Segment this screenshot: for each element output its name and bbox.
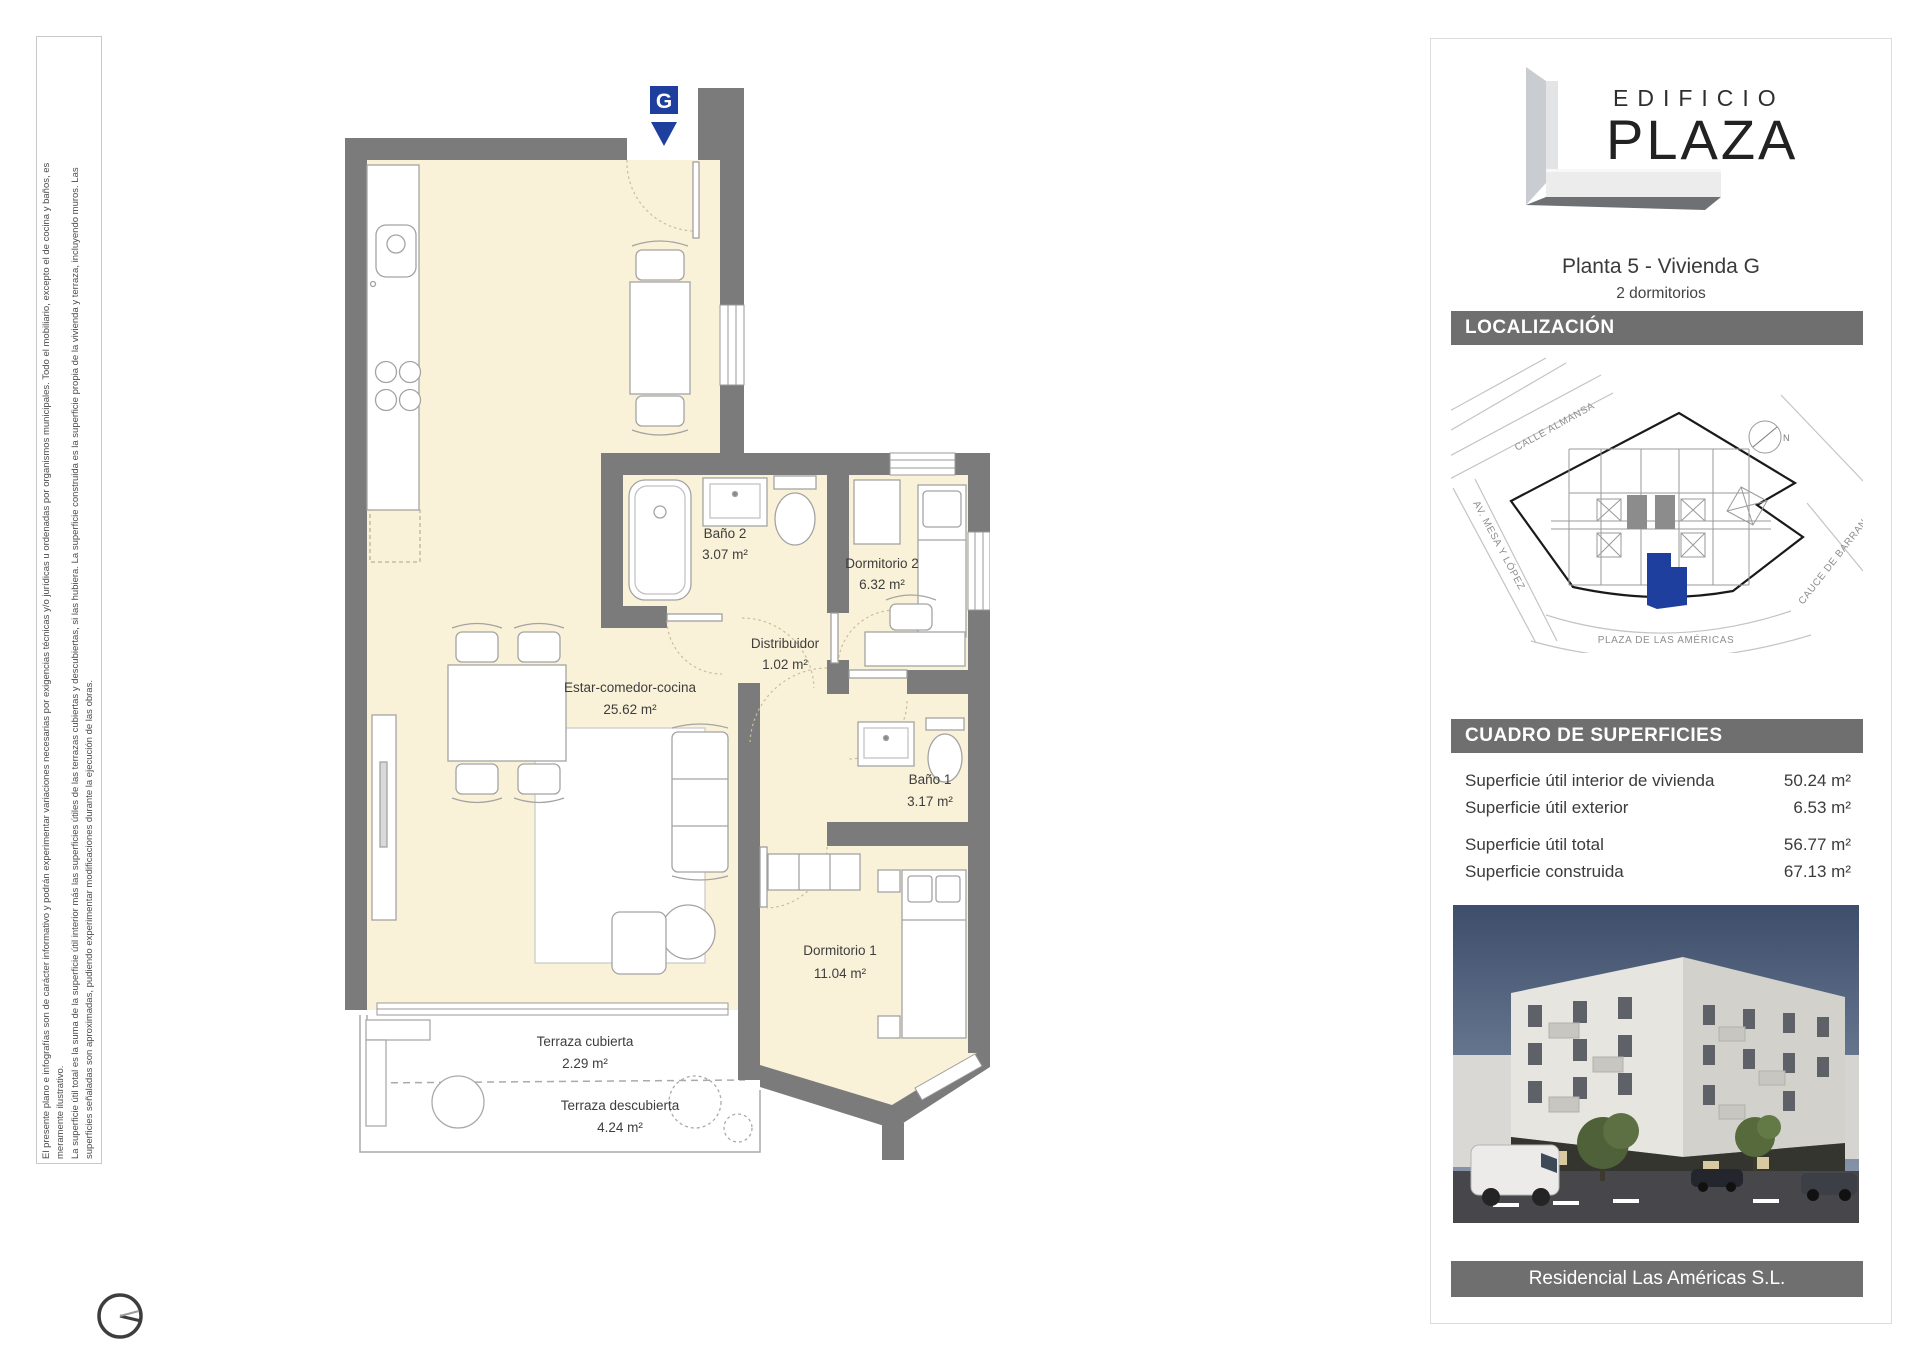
street-label: CALLE ALMANSA: [1513, 401, 1597, 454]
room-label: Distribuidor: [751, 636, 820, 651]
info-panel: EDIFICIO PLAZA Planta 5 - Vivienda G 2 d…: [1430, 38, 1892, 1324]
disclaimer-line: El presente plano e infografías son de c…: [40, 41, 54, 1159]
unit-title: Planta 5 - Vivienda G: [1431, 255, 1891, 279]
disclaimer-line: meramente ilustrativo.: [54, 41, 68, 1159]
room-area: 1.02 m²: [762, 657, 808, 672]
street-label: PLAZA DE LAS AMÉRICAS: [1598, 633, 1735, 646]
row-label: Superficie útil interior de vivienda: [1465, 771, 1714, 791]
entrance-arrow-icon: [651, 122, 677, 146]
row-label: Superficie construida: [1465, 862, 1624, 882]
row-value: 56.77 m²: [1784, 835, 1851, 855]
room-area: 6.32 m²: [859, 577, 905, 592]
unit-subtitle: 2 dormitorios: [1431, 285, 1891, 303]
room-label: Estar-comedor-cocina: [564, 680, 697, 695]
table-row: Superficie útil interior de vivienda 50.…: [1465, 767, 1851, 794]
room-area: 2.29 m²: [562, 1056, 608, 1071]
row-value: 6.53 m²: [1793, 798, 1851, 818]
table-row: Superficie útil total 56.77 m²: [1465, 831, 1851, 858]
developer-footer: Residencial Las Américas S.L.: [1451, 1261, 1863, 1297]
section-header-superficies: CUADRO DE SUPERFICIES: [1451, 719, 1863, 753]
row-value: 50.24 m²: [1784, 771, 1851, 791]
room-area: 3.17 m²: [907, 794, 953, 809]
north-indicator-icon: [92, 1288, 150, 1346]
entrance-marker: G: [650, 86, 678, 146]
room-area: 25.62 m²: [603, 702, 657, 717]
room-label: Baño 2: [704, 526, 747, 541]
row-label: Superficie útil total: [1465, 835, 1604, 855]
location-map: N CALLE ALMANSA AV. MESA Y LÓPEZ CAUCE D…: [1451, 353, 1863, 653]
room-label: Terraza cubierta: [537, 1034, 634, 1049]
row-label: Superficie útil exterior: [1465, 798, 1628, 818]
disclaimer-line: La superficie útil total es la suma de l…: [69, 41, 83, 1159]
disclaimer-box: El presente plano e infografías son de c…: [36, 36, 102, 1164]
map-north-label: N: [1783, 433, 1790, 443]
logo: EDIFICIO PLAZA: [1501, 65, 1821, 217]
room-label: Terraza descubierta: [561, 1098, 680, 1113]
room-label: Dormitorio 1: [803, 943, 877, 958]
logo-text-plaza: PLAZA: [1606, 107, 1798, 172]
room-area: 3.07 m²: [702, 547, 748, 562]
floor-plan: G: [330, 70, 990, 1160]
row-value: 67.13 m²: [1784, 862, 1851, 882]
disclaimer-text: El presente plano e infografías son de c…: [40, 41, 98, 1159]
table-row: Superficie construida 67.13 m²: [1465, 858, 1851, 885]
section-header-localizacion: LOCALIZACIÓN: [1451, 311, 1863, 345]
table-row: Superficie útil exterior 6.53 m²: [1465, 794, 1851, 821]
street-label: CAUCE DE BARRANCO: [1797, 504, 1863, 606]
surfaces-table: Superficie útil interior de vivienda 50.…: [1465, 767, 1863, 885]
room-label: Dormitorio 2: [845, 556, 919, 571]
disclaimer-line: superficies señaladas son aproximadas, p…: [83, 41, 97, 1159]
entrance-letter: G: [656, 90, 672, 113]
room-area: 11.04 m²: [814, 966, 867, 981]
map-compass-icon: N: [1749, 421, 1790, 453]
room-label: Baño 1: [909, 772, 952, 787]
room-area: 4.24 m²: [597, 1120, 643, 1135]
building-photo: [1453, 905, 1859, 1223]
